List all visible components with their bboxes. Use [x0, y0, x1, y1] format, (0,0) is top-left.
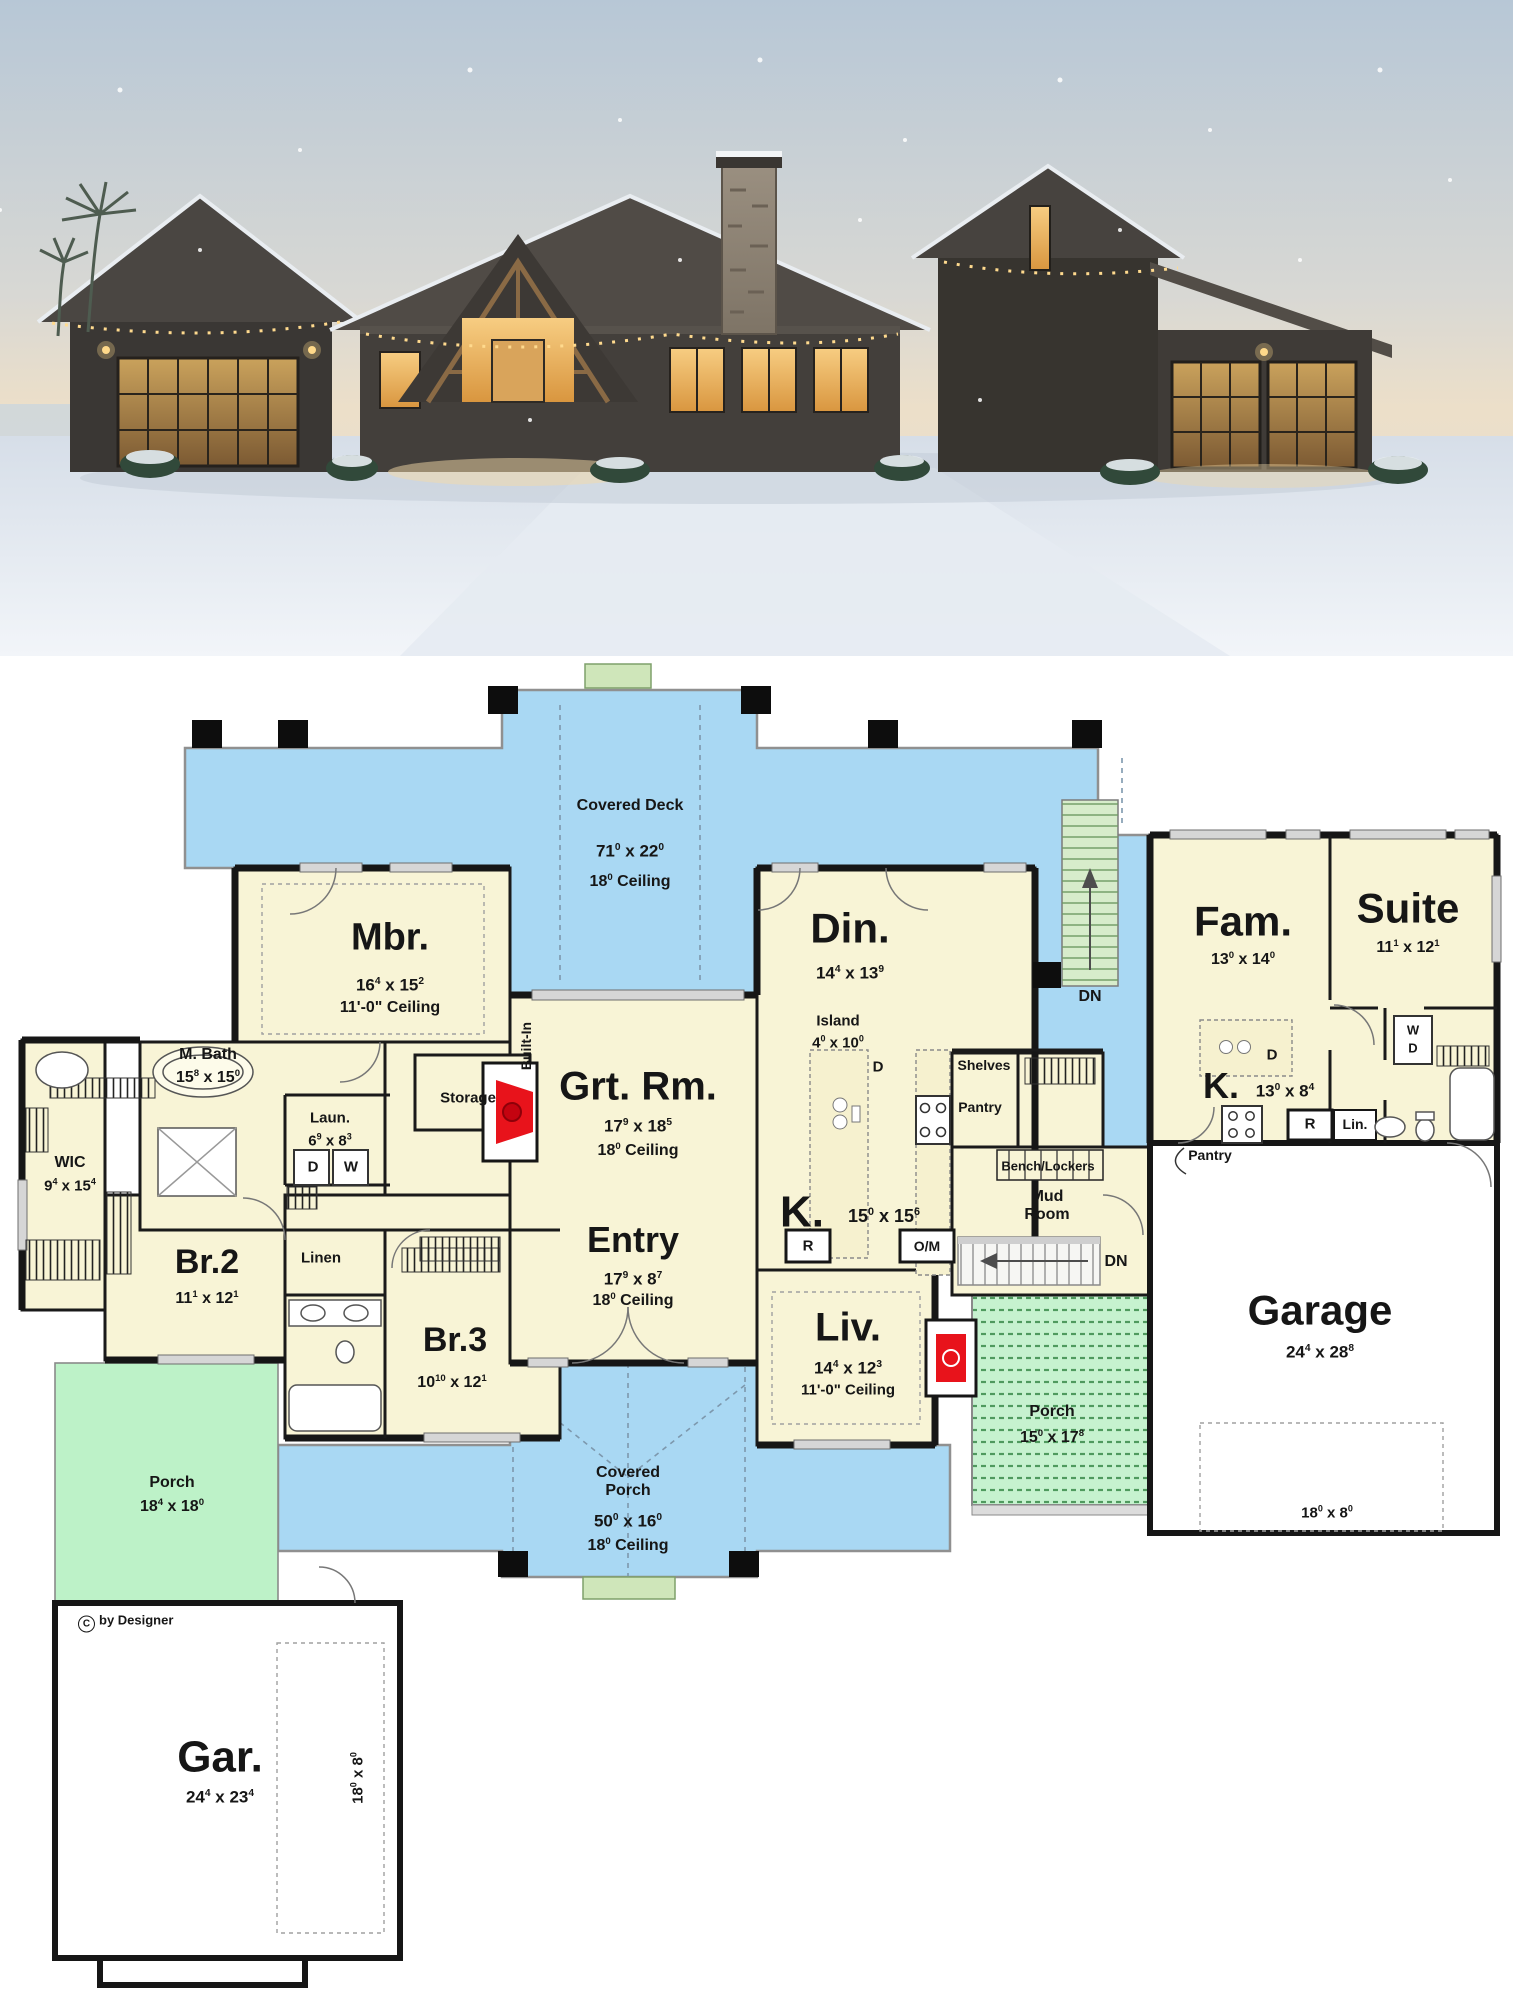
dn-deck-label: DN — [1078, 988, 1101, 1006]
covered-deck-dims: 710 x 220 — [596, 841, 664, 860]
dining-label: Din. — [810, 904, 889, 951]
entry-label: Entry — [587, 1220, 679, 1260]
garage-label: Garage — [1248, 1286, 1393, 1333]
porch-right-dims: 150 x 178 — [1020, 1429, 1084, 1447]
dryer-laundry-marker: D — [308, 1160, 319, 1177]
range-marker: R — [803, 1239, 814, 1256]
great-room-label: Grt. Rm. — [559, 1065, 717, 1110]
basement-stairs-dn — [958, 1237, 1100, 1285]
kitchen2-dims: 130 x 84 — [1256, 1081, 1315, 1100]
bench-lockers-label: Bench/Lockers — [1001, 1160, 1094, 1175]
gar-bottom-door-dims: 180 x 80 — [349, 1752, 368, 1804]
copyright: Cby Designer — [78, 1614, 173, 1633]
br3-label: Br.3 — [423, 1321, 487, 1359]
porch-right-label: Porch — [1029, 1403, 1074, 1421]
living-label: Liv. — [815, 1306, 881, 1351]
storage-label: Storage — [440, 1091, 496, 1108]
mbr-dims: 164 x 152 — [356, 975, 424, 994]
br2-label: Br.2 — [175, 1243, 239, 1281]
laundry-label: Laun. — [310, 1111, 350, 1128]
covered-deck-ceiling: 180 Ceiling — [590, 873, 671, 891]
entry-ceiling: 180 Ceiling — [593, 1292, 674, 1310]
floor-plan — [0, 0, 1513, 2000]
linen-label: Linen — [301, 1251, 341, 1268]
copyright-text: by Designer — [99, 1613, 173, 1628]
listing-image: Covered Deck 710 x 220 180 Ceiling Mbr. … — [0, 0, 1513, 2000]
mbr-ceiling: 11'-0" Ceiling — [340, 999, 440, 1017]
oven-microwave-marker: O/M — [914, 1239, 940, 1255]
covered-deck-label: Covered Deck — [575, 797, 685, 815]
built-in-label: Built-In — [519, 1022, 535, 1070]
mbath-label: M. Bath — [179, 1046, 237, 1064]
washer-laundry-marker: W — [344, 1160, 358, 1177]
range2-marker: R — [1305, 1117, 1316, 1134]
covered-porch-dims: 500 x 160 — [594, 1511, 662, 1530]
living-dims: 144 x 123 — [814, 1358, 882, 1377]
pantry-label: Pantry — [958, 1100, 1002, 1116]
island-dims: 40 x 100 — [812, 1034, 864, 1053]
wic-dims: 94 x 154 — [44, 1177, 96, 1196]
dn-basement-label: DN — [1104, 1253, 1127, 1271]
laundry-dims: 69 x 83 — [308, 1132, 351, 1151]
fireplace-icon-living — [926, 1320, 976, 1396]
copyright-icon: C — [78, 1616, 95, 1633]
covered-porch-label: Covered Porch — [578, 1464, 678, 1500]
kitchen2-label: K. — [1203, 1066, 1239, 1106]
suite-dims: 111 x 121 — [1376, 939, 1439, 957]
garage-dims: 244 x 288 — [1286, 1342, 1354, 1361]
gar-bottom-dims: 244 x 234 — [186, 1787, 254, 1806]
porch-left-dims: 184 x 180 — [140, 1498, 204, 1516]
pantry2-label: Pantry — [1188, 1148, 1232, 1164]
gar-bottom-label: Gar. — [177, 1732, 263, 1781]
br2-dims: 111 x 121 — [175, 1290, 238, 1308]
wic-label: WIC — [54, 1154, 85, 1172]
dining-dims: 144 x 139 — [816, 963, 884, 982]
washer-marker: W — [1407, 1024, 1419, 1039]
fireplace-icon-great-room — [483, 1063, 537, 1161]
covered-porch-ceiling: 180 Ceiling — [588, 1537, 669, 1555]
garage-door-dims: 180 x 80 — [1301, 1504, 1353, 1523]
kitchen-dims: 150 x 156 — [848, 1206, 920, 1226]
linen2-label: Lin. — [1343, 1117, 1368, 1133]
br3-dims: 1010 x 121 — [417, 1374, 486, 1392]
dryer-marker: D — [1408, 1042, 1417, 1057]
living-ceiling: 11'-0" Ceiling — [801, 1383, 895, 1400]
mud-room-label: Mud Room — [1015, 1188, 1079, 1224]
porch-left-label: Porch — [149, 1474, 194, 1492]
dishwasher-marker: D — [873, 1060, 884, 1077]
great-room-ceiling: 180 Ceiling — [598, 1142, 679, 1160]
family-dims: 130 x 140 — [1211, 951, 1275, 969]
shelves-label: Shelves — [958, 1058, 1011, 1074]
great-room-dims: 179 x 185 — [604, 1116, 672, 1135]
suite-label: Suite — [1357, 884, 1460, 931]
dishwasher2-marker: D — [1267, 1048, 1278, 1065]
deck-stairs-dn — [1062, 800, 1118, 986]
kitchen-label: K. — [780, 1187, 824, 1236]
family-label: Fam. — [1194, 897, 1292, 944]
entry-dims: 179 x 87 — [604, 1269, 663, 1288]
mbath-dims: 158 x 150 — [176, 1069, 240, 1087]
island-label: Island — [816, 1014, 859, 1031]
mbr-label: Mbr. — [351, 917, 429, 960]
